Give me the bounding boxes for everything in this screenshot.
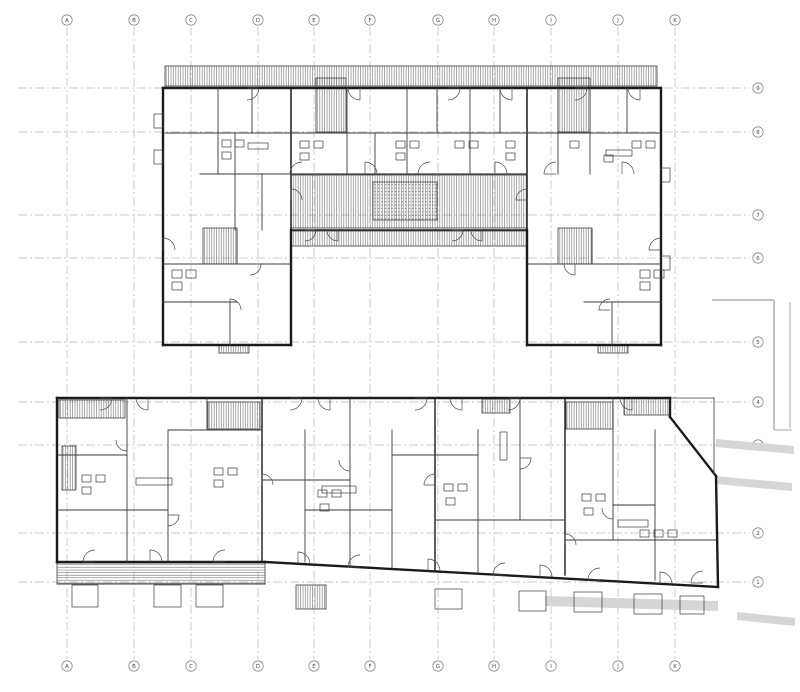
wall-segment (670, 417, 716, 476)
door-swing (168, 515, 179, 526)
grid-row-label: 4 (756, 400, 760, 406)
fixture-outline (300, 153, 309, 160)
door-swing (163, 238, 175, 250)
grid-column-label: A (65, 664, 69, 670)
door-swing (136, 398, 148, 410)
fixture-outline (172, 282, 182, 290)
fixture-outline (214, 480, 223, 487)
fixture-outline (154, 150, 163, 164)
hatched-area (624, 398, 670, 415)
door-swing (540, 565, 552, 577)
grid-row-label: 6 (756, 256, 760, 262)
fixture-outline (444, 484, 453, 491)
grid-column-label: K (673, 18, 677, 24)
fixture-outline (154, 114, 163, 128)
door-swing (565, 534, 576, 545)
door-swing (691, 571, 703, 583)
grid-row-label: 9 (756, 86, 760, 92)
door-swing (599, 299, 610, 310)
door-swing (298, 552, 310, 564)
wall-segment (265, 562, 718, 587)
fixture-outline (82, 487, 91, 494)
fixture-outline (654, 270, 664, 278)
fixture-outline (646, 141, 655, 148)
door-swing (415, 398, 427, 410)
fixture-outline (332, 490, 341, 497)
hatched-area (373, 182, 437, 220)
grid-column-label: H (492, 664, 496, 670)
fixture-outline (72, 585, 98, 607)
door-swing (290, 398, 302, 410)
hatched-area (296, 585, 326, 609)
hatched-area (208, 402, 260, 429)
grid-row-label: 2 (756, 531, 759, 537)
grid-column-label: G (436, 664, 440, 670)
door-swing (150, 550, 162, 562)
fixture-outline (318, 490, 327, 497)
fixture-outline (455, 141, 464, 148)
grid-column-label: E (312, 664, 316, 670)
grid-column-label: K (673, 664, 677, 670)
door-swing (418, 162, 430, 174)
door-swing (602, 508, 613, 519)
fixture-outline (235, 140, 244, 147)
door-swing (247, 88, 259, 100)
grid-column-label: H (492, 18, 496, 24)
fixture-outline (570, 141, 579, 148)
context-building-outline (716, 476, 792, 491)
fixture-outline (582, 494, 591, 501)
grid-column-label: F (368, 18, 371, 24)
fixture-outline (661, 168, 670, 182)
door-swing (564, 264, 575, 275)
door-swing (588, 568, 600, 580)
door-swing (250, 264, 261, 275)
door-swing (339, 460, 350, 471)
fixture-outline (96, 475, 105, 482)
grid-column-label: J (616, 18, 619, 24)
door-swing (230, 299, 241, 310)
fixture-outline (640, 282, 650, 290)
door-swing (622, 162, 634, 174)
door-swing (290, 162, 302, 174)
fixture-outline (196, 585, 223, 607)
hatched-area (558, 78, 590, 132)
fixture-outline (506, 153, 515, 160)
fixture-outline (300, 141, 309, 148)
door-swing (83, 550, 95, 562)
grid-column-label: B (132, 664, 136, 670)
grid-column-label: D (256, 18, 260, 24)
hatched-area (482, 399, 510, 413)
grid-column-label: C (189, 18, 193, 24)
fixture-outline (446, 498, 455, 505)
fixture-outline (584, 508, 593, 515)
grid-column-label: F (368, 664, 371, 670)
fixture-outline (596, 494, 605, 501)
fixture-outline (154, 585, 181, 607)
door-swing (116, 440, 127, 451)
fixture-outline (410, 141, 419, 148)
fixture-outline (435, 589, 462, 609)
door-swing (649, 238, 661, 250)
fixture-outline (519, 591, 546, 611)
fixture-outline (228, 468, 237, 475)
fixture-outline (314, 141, 323, 148)
door-swing (500, 88, 512, 100)
grid-column-label: B (132, 18, 136, 24)
fixture-outline (214, 468, 223, 475)
fixture-outline (136, 478, 172, 485)
fixture-outline (82, 475, 91, 482)
door-swing (424, 474, 435, 485)
grid-column-label: A (65, 18, 69, 24)
fixture-outline (500, 432, 507, 460)
fixture-outline (396, 141, 405, 148)
door-swing (348, 88, 360, 100)
fixture-outline (632, 141, 641, 148)
fixture-outline (172, 270, 182, 278)
hatched-area (291, 231, 527, 246)
floor-plan-drawing: AABBCCDDEEFFGGHHIIJJKK987654321 (0, 0, 800, 692)
fixture-outline (396, 153, 405, 160)
wall-segment (716, 476, 718, 587)
grid-row-label: 8 (756, 130, 760, 136)
fixture-outline (618, 520, 648, 527)
fixture-outline (222, 152, 231, 159)
hatched-area (57, 563, 265, 584)
grid-column-label: J (616, 664, 619, 670)
floor-plan-sheet: AABBCCDDEEFFGGHHIIJJKK987654321 (0, 0, 800, 692)
fixture-outline (640, 270, 650, 278)
grid-row-label: 1 (756, 580, 759, 586)
door-swing (450, 398, 462, 410)
door-swing (318, 398, 330, 410)
grid-column-label: C (189, 664, 193, 670)
fixture-outline (222, 140, 231, 147)
grid-column-label: E (312, 18, 316, 24)
fixture-outline (668, 530, 677, 537)
hatched-area (316, 78, 346, 132)
grid-column-label: D (256, 664, 260, 670)
hatched-area (59, 400, 125, 418)
door-swing (628, 88, 640, 100)
context-building-outline (737, 612, 795, 626)
door-swing (213, 550, 225, 562)
context-building-outline (545, 596, 718, 611)
grid-row-label: 7 (756, 213, 759, 219)
grid-column-label: G (436, 18, 440, 24)
hatched-area (203, 228, 237, 264)
fixture-outline (640, 530, 649, 537)
door-swing (495, 162, 507, 174)
door-swing (544, 162, 556, 174)
hatched-area (558, 228, 592, 264)
fixture-outline (506, 141, 515, 148)
hatched-area (62, 446, 76, 490)
door-swing (520, 458, 531, 469)
hatched-area (566, 402, 613, 429)
door-swing (493, 563, 505, 575)
door-swing (448, 88, 460, 100)
door-swing (262, 474, 273, 485)
fixture-outline (458, 484, 467, 491)
grid-row-label: 5 (756, 340, 759, 346)
